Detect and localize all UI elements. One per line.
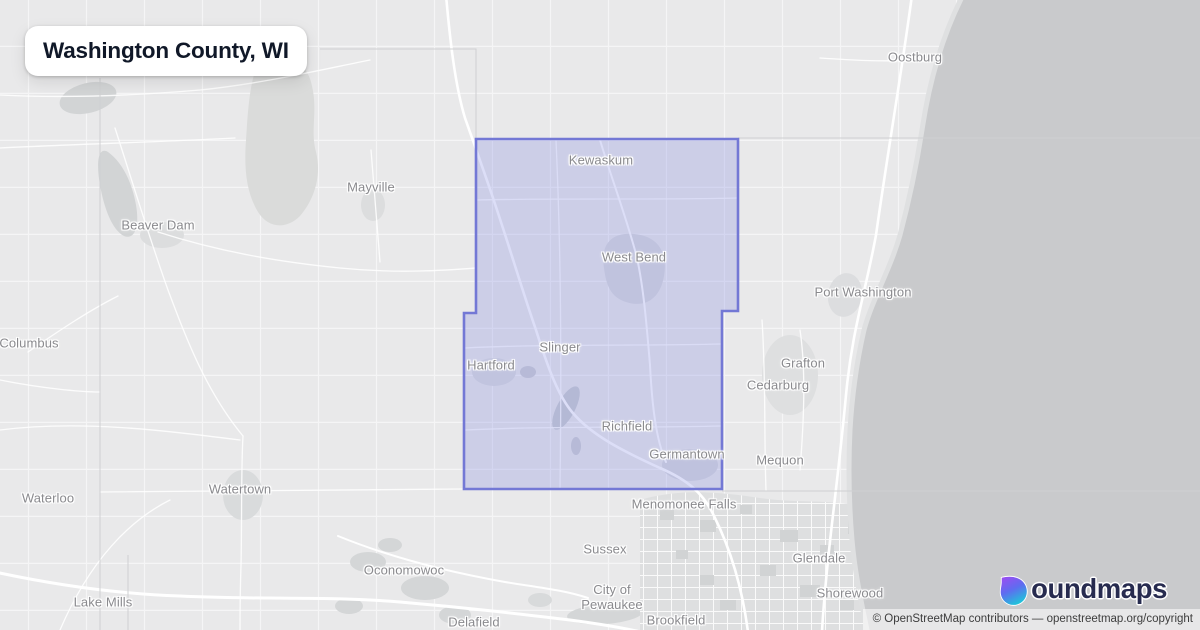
boundmaps-wordmark: oundmaps: [1031, 575, 1167, 603]
map-screenshot: OostburgKewaskumMayvilleBeaver DamWest B…: [0, 0, 1200, 630]
page-title: Washington County, WI: [43, 38, 289, 64]
boundmaps-b-icon: [999, 575, 1030, 606]
attribution-text: © OpenStreetMap contributors — openstree…: [873, 613, 1193, 625]
map-canvas: [0, 0, 1200, 630]
boundmaps-logo: oundmaps: [999, 573, 1167, 605]
county-boundary-highlight: [464, 139, 738, 489]
title-card: Washington County, WI: [25, 26, 307, 76]
attribution-bar: © OpenStreetMap contributors — openstree…: [863, 609, 1200, 630]
